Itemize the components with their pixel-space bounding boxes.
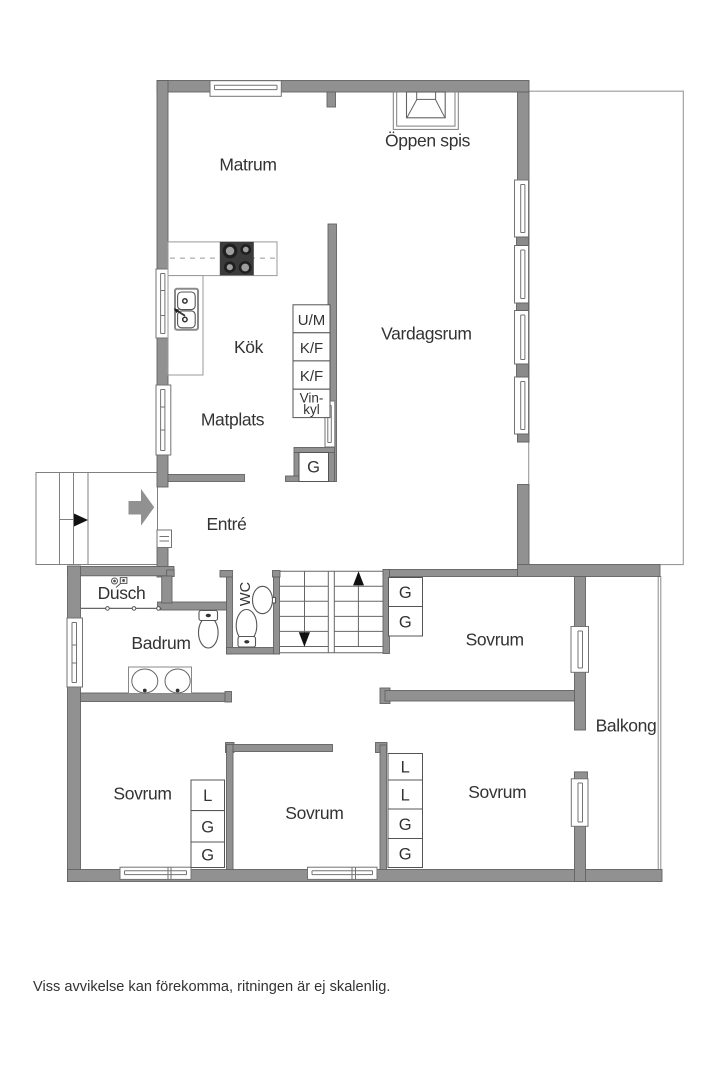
svg-text:G: G bbox=[201, 819, 214, 837]
svg-text:Viss avvikelse kan förekomma,: Viss avvikelse kan förekomma, ritningen … bbox=[33, 979, 390, 995]
svg-text:G: G bbox=[307, 459, 320, 477]
svg-text:K/F: K/F bbox=[300, 340, 323, 357]
svg-text:L: L bbox=[203, 787, 212, 805]
svg-text:Dusch: Dusch bbox=[98, 583, 146, 603]
svg-text:Sovrum: Sovrum bbox=[285, 803, 343, 823]
svg-text:G: G bbox=[201, 846, 214, 864]
svg-text:Entré: Entré bbox=[206, 514, 246, 534]
svg-text:Sovrum: Sovrum bbox=[113, 784, 171, 804]
svg-text:L: L bbox=[401, 758, 410, 776]
svg-text:G: G bbox=[399, 584, 412, 602]
svg-text:Kök: Kök bbox=[234, 337, 264, 357]
svg-text:K/F: K/F bbox=[300, 368, 323, 385]
svg-text:U/M: U/M bbox=[298, 312, 326, 329]
svg-text:G: G bbox=[399, 816, 412, 834]
svg-text:kyl: kyl bbox=[303, 402, 320, 417]
svg-text:Balkong: Balkong bbox=[596, 716, 657, 736]
svg-text:Sovrum: Sovrum bbox=[468, 782, 526, 802]
svg-text:G: G bbox=[399, 614, 412, 632]
svg-text:Öppen spis: Öppen spis bbox=[385, 130, 471, 150]
svg-text:WC: WC bbox=[238, 582, 254, 606]
svg-text:G: G bbox=[399, 845, 412, 863]
svg-text:Sovrum: Sovrum bbox=[466, 630, 524, 650]
svg-text:Matrum: Matrum bbox=[219, 155, 276, 175]
svg-text:Badrum: Badrum bbox=[131, 633, 190, 653]
svg-text:Vardagsrum: Vardagsrum bbox=[381, 323, 472, 343]
svg-text:Matplats: Matplats bbox=[201, 410, 265, 430]
svg-text:L: L bbox=[401, 787, 410, 805]
